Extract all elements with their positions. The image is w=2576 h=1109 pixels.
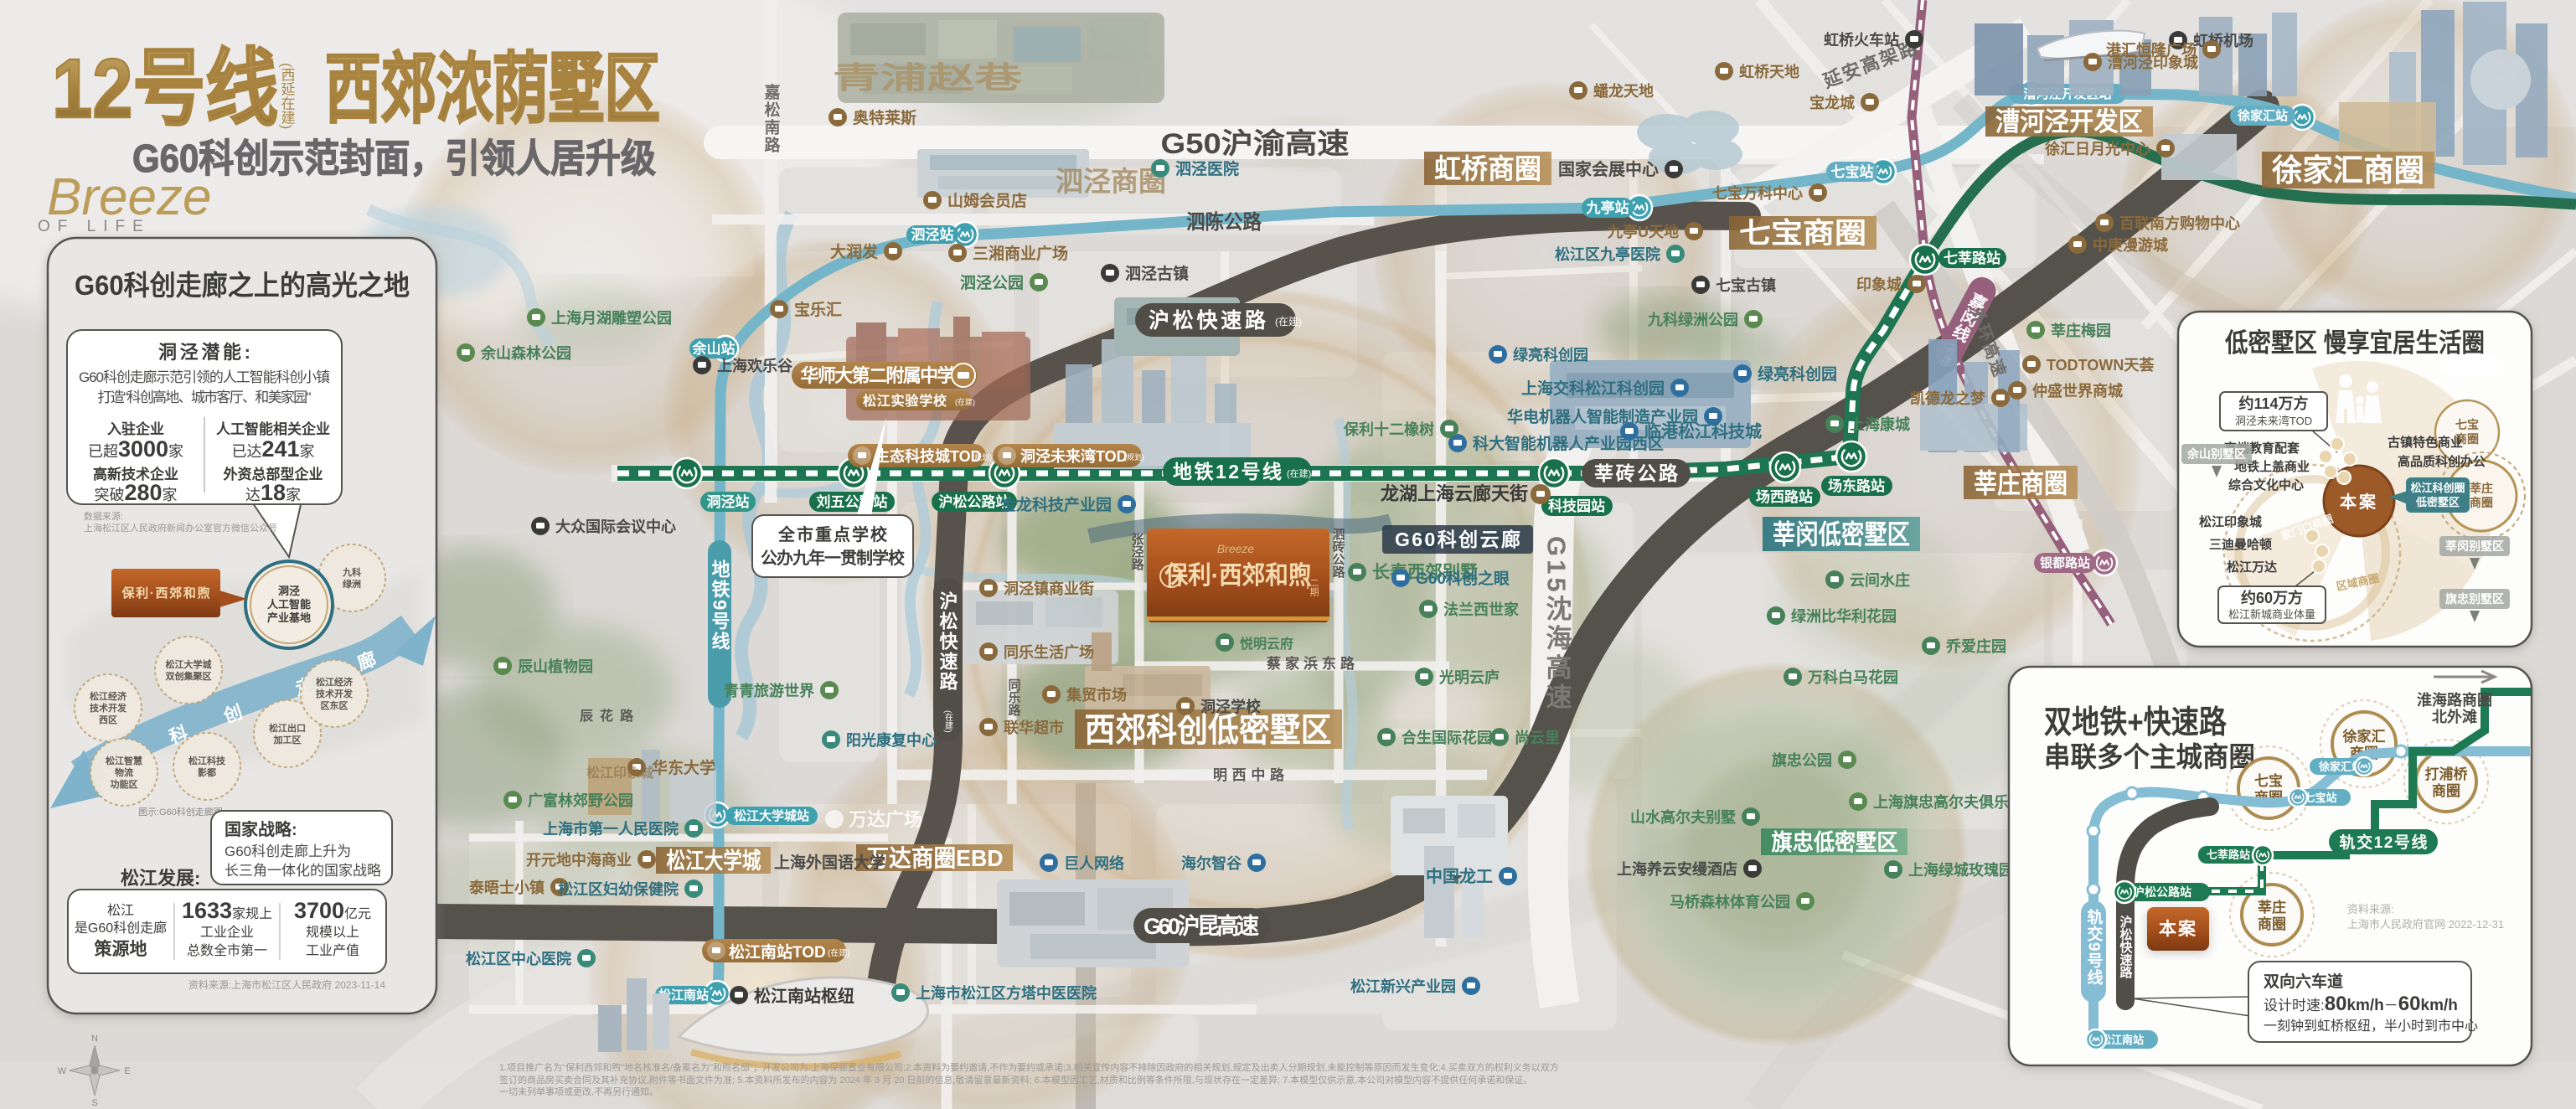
svg-text:悦明云府: 悦明云府 xyxy=(1240,636,1293,652)
svg-text:资料来源:上海市松江区人民政府 2023-11-14: 资料来源:上海市松江区人民政府 2023-11-14 xyxy=(188,978,385,991)
svg-text:(规划): (规划) xyxy=(1124,452,1144,462)
svg-text:商圈: 商圈 xyxy=(2432,782,2460,799)
svg-text:沪松公路站: 沪松公路站 xyxy=(2133,885,2191,899)
svg-text:余山森林公园: 余山森林公园 xyxy=(480,344,571,362)
svg-text:Breeze: Breeze xyxy=(1217,542,1255,555)
svg-text:上海旗忠高尔夫俱乐部: 上海旗忠高尔夫俱乐部 xyxy=(1873,793,2024,811)
svg-text:松江智慧: 松江智慧 xyxy=(106,755,142,766)
svg-text:莘庄: 莘庄 xyxy=(2258,899,2286,916)
svg-text:上海市人民政府官网 2022-12-31: 上海市人民政府官网 2022-12-31 xyxy=(2347,918,2504,931)
svg-text:松江科创圈: 松江科创圈 xyxy=(2410,482,2465,494)
svg-text:尚云里: 尚云里 xyxy=(1515,729,1560,746)
svg-text:场西路站: 场西路站 xyxy=(1756,488,1813,505)
svg-text:双向六车道: 双向六车道 xyxy=(2264,972,2343,991)
svg-text:青青旅游世界: 青青旅游世界 xyxy=(724,682,814,699)
svg-text:山姆会员店: 山姆会员店 xyxy=(947,191,1027,210)
svg-text:绿洲: 绿洲 xyxy=(343,578,361,590)
svg-text:松江经济: 松江经济 xyxy=(90,690,127,702)
svg-text:印象城: 印象城 xyxy=(1856,276,1902,293)
svg-text:影都: 影都 xyxy=(198,766,216,778)
svg-text:徐家汇站: 徐家汇站 xyxy=(2237,108,2288,123)
svg-text:松江新城商业体量: 松江新城商业体量 xyxy=(2228,608,2315,621)
svg-text:广富林郊野公园: 广富林郊野公园 xyxy=(528,792,633,809)
svg-text:G60科创走廊上升为: G60科创走廊上升为 xyxy=(225,843,351,859)
svg-text:生态科技城TOD: 生态科技城TOD xyxy=(875,447,982,465)
svg-text:云间水庄: 云间水庄 xyxy=(1850,571,1910,589)
svg-text:G60科创走廊示范引领的人工智能科创小镇: G60科创走廊示范引领的人工智能科创小镇 xyxy=(79,369,330,385)
svg-text:百联南方购物中心: 百联南方购物中心 xyxy=(2119,214,2240,232)
svg-text:七宝古镇: 七宝古镇 xyxy=(1716,276,1776,294)
svg-text:上海市第一人民医院: 上海市第一人民医院 xyxy=(543,820,679,838)
svg-text:泗泾公园: 泗泾公园 xyxy=(960,274,1024,292)
svg-text:宝乐汇: 宝乐汇 xyxy=(794,300,842,319)
svg-text:莘庄: 莘庄 xyxy=(2470,482,2493,495)
svg-text:泗泾医院: 泗泾医院 xyxy=(1175,159,1239,178)
svg-text:虹桥火车站: 虹桥火车站 xyxy=(1824,31,1899,49)
svg-text:联华超市: 联华超市 xyxy=(1004,719,1064,736)
svg-text:三湘商业广场: 三湘商业广场 xyxy=(973,244,1068,263)
svg-text:TODTOWN天荟: TODTOWN天荟 xyxy=(2047,356,2155,374)
svg-text:九亭站: 九亭站 xyxy=(1586,199,1629,216)
svg-text:徐汇日月光中心: 徐汇日月光中心 xyxy=(2044,140,2150,157)
svg-text:七宝站: 七宝站 xyxy=(2304,792,2336,804)
svg-text:松江印象城: 松江印象城 xyxy=(2199,514,2262,529)
svg-text:松江大学城站: 松江大学城站 xyxy=(734,808,809,823)
svg-text:OF LIFE: OF LIFE xyxy=(38,218,151,235)
svg-text:约114万方: 约114万方 xyxy=(2238,395,2308,412)
svg-text:(在建): (在建) xyxy=(1275,316,1302,328)
svg-text:区东区: 区东区 xyxy=(321,699,348,711)
svg-text:余山别墅区: 余山别墅区 xyxy=(2186,447,2246,461)
svg-text:海尔智谷: 海尔智谷 xyxy=(1181,854,1242,872)
svg-text:同乐生活广场: 同乐生活广场 xyxy=(1004,643,1094,661)
svg-text:轨交12号线: 轨交12号线 xyxy=(2340,833,2428,852)
svg-text:莘闵别墅区: 莘闵别墅区 xyxy=(2445,539,2504,553)
svg-text:松江经济: 松江经济 xyxy=(316,676,354,688)
svg-text:(西延在建): (西延在建) xyxy=(279,63,296,129)
svg-text:(在建): (在建) xyxy=(828,947,850,958)
svg-text:集贸市场: 集贸市场 xyxy=(1066,686,1127,704)
svg-text:打浦桥: 打浦桥 xyxy=(2425,766,2469,782)
svg-text:洞泾未来湾TOD: 洞泾未来湾TOD xyxy=(2235,415,2312,427)
svg-text:12号线: 12号线 xyxy=(52,42,278,136)
svg-text:保利·西郊和煦: 保利·西郊和煦 xyxy=(1165,561,1312,590)
svg-text:松江南站枢纽: 松江南站枢纽 xyxy=(754,986,854,1006)
svg-text:开元地中海商业: 开元地中海商业 xyxy=(526,851,632,869)
svg-text:人工智能: 人工智能 xyxy=(267,598,311,611)
svg-text:沪松公路站: 沪松公路站 xyxy=(939,493,1010,510)
svg-text:巨人网络: 巨人网络 xyxy=(1064,854,1124,872)
svg-text:松江区中心医院: 松江区中心医院 xyxy=(466,950,571,967)
svg-text:泰晤士小镇: 泰晤士小镇 xyxy=(468,879,545,896)
svg-text:本案: 本案 xyxy=(2159,919,2197,939)
svg-text:泗砖公路: 泗砖公路 xyxy=(1331,528,1345,578)
svg-text:万达广场: 万达广场 xyxy=(848,809,922,830)
svg-text:山水高尔夫别墅: 山水高尔夫别墅 xyxy=(1630,808,1736,826)
svg-text:上海交科松江科创园: 上海交科松江科创园 xyxy=(1521,379,1665,398)
svg-text:串联多个主城商圈: 串联多个主城商圈 xyxy=(2044,741,2255,772)
svg-text:莘庄商圈: 莘庄商圈 xyxy=(1974,468,2068,498)
svg-text:是G60科创走廊: 是G60科创走廊 xyxy=(75,921,167,936)
svg-text:蟠龙天地: 蟠龙天地 xyxy=(1593,82,1654,100)
svg-text:宝龙城: 宝龙城 xyxy=(1809,94,1855,111)
svg-text:漕河泾开发区: 漕河泾开发区 xyxy=(1995,107,2143,137)
svg-text:轨交9号线: 轨交9号线 xyxy=(2085,908,2104,986)
svg-text:商圈: 商圈 xyxy=(2258,916,2286,932)
svg-text:泗泾古镇: 泗泾古镇 xyxy=(1125,264,1189,283)
svg-text:长三角一体化的国家战略: 长三角一体化的国家战略 xyxy=(225,863,381,879)
svg-text:中庚漫游城: 中庚漫游城 xyxy=(2093,236,2168,254)
svg-text:洞泾: 洞泾 xyxy=(278,585,300,597)
svg-text:莘闵低密墅区: 莘闵低密墅区 xyxy=(1773,519,1910,549)
svg-text:(在建): (在建) xyxy=(955,397,975,406)
svg-text:上海外国语大学: 上海外国语大学 xyxy=(774,853,885,872)
svg-text:工业企业: 工业企业 xyxy=(200,925,254,940)
svg-text:低密墅区 慢享宜居生活圈: 低密墅区 慢享宜居生活圈 xyxy=(2224,328,2485,358)
svg-text:徐家汇: 徐家汇 xyxy=(2342,728,2386,745)
svg-text:人工智能相关企业: 人工智能相关企业 xyxy=(216,420,330,437)
svg-text:G60科创走廊之上的高光之地: G60科创走廊之上的高光之地 xyxy=(75,270,410,301)
svg-text:仲盛世界商城: 仲盛世界商城 xyxy=(2032,382,2123,400)
svg-text:签订的商品房买卖合同及其补充协议,附件等书面文件为准; 5.: 签订的商品房买卖合同及其补充协议,附件等书面文件为准; 5.本资料所发布的内容为… xyxy=(499,1074,1532,1086)
svg-text:七宝万科中心: 七宝万科中心 xyxy=(1712,184,1803,202)
svg-text:G50沪渝高速: G50沪渝高速 xyxy=(1161,128,1350,160)
svg-text:辰花路: 辰花路 xyxy=(580,708,634,724)
svg-text:金龙科技产业园: 金龙科技产业园 xyxy=(999,495,1112,514)
svg-text:商圈: 商圈 xyxy=(2470,496,2493,509)
svg-text:七莘路站: 七莘路站 xyxy=(2207,849,2250,861)
svg-text:马桥森林体育公园: 马桥森林体育公园 xyxy=(1670,893,1790,910)
svg-text:松江科技: 松江科技 xyxy=(188,755,226,766)
svg-text:W: W xyxy=(58,1066,67,1076)
svg-text:虹桥天地: 虹桥天地 xyxy=(1739,63,1799,80)
svg-text:场东路站: 场东路站 xyxy=(1828,477,1885,494)
svg-text:虹桥商圈: 虹桥商圈 xyxy=(1434,153,1541,184)
svg-text:洞泾潜能:: 洞泾潜能: xyxy=(158,342,250,363)
svg-text:大众国际会议中心: 大众国际会议中心 xyxy=(555,518,676,535)
svg-text:双地铁+快速路: 双地铁+快速路 xyxy=(2044,705,2228,740)
svg-text:青浦赵巷: 青浦赵巷 xyxy=(833,60,1024,95)
svg-text:嘉松南路: 嘉松南路 xyxy=(762,84,782,154)
svg-text:古镇特色商业: 古镇特色商业 xyxy=(2388,435,2463,450)
svg-text:莘砖公路: 莘砖公路 xyxy=(1594,462,1679,484)
svg-text:松江区九亭医院: 松江区九亭医院 xyxy=(1555,245,1660,263)
svg-text:北外滩: 北外滩 xyxy=(2432,708,2477,725)
svg-text:科技园站: 科技园站 xyxy=(1548,498,1605,514)
svg-text:技术开发: 技术开发 xyxy=(90,702,127,714)
svg-text:S: S xyxy=(91,1098,97,1108)
svg-text:万达商圈EBD: 万达商圈EBD xyxy=(867,845,1004,871)
svg-text:同乐路: 同乐路 xyxy=(1007,678,1021,716)
svg-text:临港松江科技城: 临港松江科技城 xyxy=(1644,421,1762,441)
svg-text:高品质科创办公: 高品质科创办公 xyxy=(2398,454,2486,469)
svg-text:龙湖上海云廊天街: 龙湖上海云廊天街 xyxy=(1381,483,1528,504)
svg-text:低密墅区: 低密墅区 xyxy=(2415,496,2460,508)
svg-text:三迪曼哈顿: 三迪曼哈顿 xyxy=(2209,537,2272,552)
svg-text:(在建): (在建) xyxy=(1287,467,1311,479)
svg-text:G60科创之眼: G60科创之眼 xyxy=(1416,569,1510,588)
svg-text:旗忠低密墅区: 旗忠低密墅区 xyxy=(1772,829,1898,855)
svg-text:港汇恒隆广场: 港汇恒隆广场 xyxy=(2106,41,2197,59)
svg-text:泗泾站: 泗泾站 xyxy=(911,226,954,243)
svg-text:七莘路站: 七莘路站 xyxy=(1944,250,2000,266)
svg-text:西郊浓荫墅区: 西郊浓荫墅区 xyxy=(325,47,660,132)
svg-text:约60万方: 约60万方 xyxy=(2241,589,2303,606)
svg-text:地铁9号线: 地铁9号线 xyxy=(710,560,730,652)
svg-text:光明云庐: 光明云庐 xyxy=(1438,668,1500,686)
svg-text:双创集聚区: 双创集聚区 xyxy=(166,670,212,682)
svg-text:旗忠公园: 旗忠公园 xyxy=(1772,751,1832,769)
svg-text:(规划): (规划) xyxy=(972,452,992,462)
svg-text:徐家汇商圈: 徐家汇商圈 xyxy=(2271,153,2424,188)
svg-text:规模以上: 规模以上 xyxy=(306,925,359,940)
svg-text:七宝商圈: 七宝商圈 xyxy=(1739,218,1866,250)
svg-text:中国龙工: 中国龙工 xyxy=(1426,866,1493,886)
svg-text:虹桥机场: 虹桥机场 xyxy=(2193,32,2253,49)
svg-text:松江大学城: 松江大学城 xyxy=(667,848,761,874)
svg-text:G15沈海高速: G15沈海高速 xyxy=(1542,536,1572,713)
svg-text:功能区: 功能区 xyxy=(111,778,138,790)
svg-text:保利·西郊和煦: 保利·西郊和煦 xyxy=(121,585,210,601)
svg-text:上海市松江区方塔中医医院: 上海市松江区方塔中医医院 xyxy=(916,984,1097,1002)
svg-text:法兰西世家: 法兰西世家 xyxy=(1443,601,1520,618)
svg-text:辰山植物园: 辰山植物园 xyxy=(518,658,593,675)
svg-text:国家会展中心: 国家会展中心 xyxy=(1558,159,1659,179)
svg-text:七宝: 七宝 xyxy=(2254,772,2283,789)
svg-text:松江实验学校: 松江实验学校 xyxy=(863,393,947,409)
svg-text:泗陈公路: 泗陈公路 xyxy=(1186,210,1262,234)
svg-text:洞泾站: 洞泾站 xyxy=(707,493,750,510)
svg-text:洞泾镇商业街: 洞泾镇商业街 xyxy=(1004,580,1094,597)
svg-text:(在建): (在建) xyxy=(943,710,953,733)
svg-text:西郊科创低密墅区: 西郊科创低密墅区 xyxy=(1085,712,1332,749)
svg-text:技术开发: 技术开发 xyxy=(316,688,354,699)
svg-text:洞泾学校: 洞泾学校 xyxy=(1200,698,1262,715)
svg-text:绿亮科创园: 绿亮科创园 xyxy=(1758,364,1837,384)
svg-text:泗泾商圈: 泗泾商圈 xyxy=(1056,166,1166,197)
svg-text:洞泾未来湾TOD: 洞泾未来湾TOD xyxy=(1020,447,1128,465)
svg-text:松江大学城: 松江大学城 xyxy=(166,658,212,670)
svg-text:物流: 物流 xyxy=(115,766,133,778)
svg-text:一刻钟到虹桥枢纽，半小时到市中心: 一刻钟到虹桥枢纽，半小时到市中心 xyxy=(2264,1019,2478,1034)
svg-text:旗忠别墅区: 旗忠别墅区 xyxy=(2445,592,2504,606)
svg-text:松江万达: 松江万达 xyxy=(2227,560,2277,575)
svg-text:松江发展:: 松江发展: xyxy=(121,868,200,889)
svg-text:资料来源:: 资料来源: xyxy=(2347,903,2394,916)
svg-text:加工区: 加工区 xyxy=(273,734,302,745)
svg-text:保利十二橡树: 保利十二橡树 xyxy=(1343,420,1434,438)
svg-text:绿洲比华利花园: 绿洲比华利花园 xyxy=(1791,607,1897,625)
svg-text:工业产值: 工业产值 xyxy=(306,943,359,958)
svg-text:沪松快速路: 沪松快速路 xyxy=(937,591,958,692)
svg-text:1.项目推广名为"保利西郊和煦"地名核准名/备案名为"和煦名: 1.项目推广名为"保利西郊和煦"地名核准名/备案名为"和煦名邸"；开发公司为:上… xyxy=(499,1061,1559,1073)
svg-text:九科: 九科 xyxy=(342,566,361,578)
svg-text:松江: 松江 xyxy=(107,903,134,918)
svg-text:数据来源:: 数据来源: xyxy=(84,510,123,522)
svg-text:国家战略:: 国家战略: xyxy=(225,819,297,839)
svg-text:松江区妇幼保健院: 松江区妇幼保健院 xyxy=(558,880,679,898)
svg-text:华东大学: 华东大学 xyxy=(652,758,715,777)
svg-text:华师大第二附属中学: 华师大第二附属中学 xyxy=(801,365,956,386)
svg-text:公办九年一贯制学校: 公办九年一贯制学校 xyxy=(761,548,906,568)
svg-text:上海养云安缦酒店: 上海养云安缦酒店 xyxy=(1617,860,1737,878)
svg-text:松江南站TOD: 松江南站TOD xyxy=(729,942,826,962)
svg-text:产业基地: 产业基地 xyxy=(267,611,311,624)
svg-text:淮海路商圈: 淮海路商圈 xyxy=(2417,691,2492,709)
svg-text:一切未列举事项或更改,不再另行通知。: 一切未列举事项或更改,不再另行通知。 xyxy=(499,1086,658,1097)
svg-text:奥特莱斯: 奥特莱斯 xyxy=(853,108,916,127)
svg-text:沪松快速路: 沪松快速路 xyxy=(1149,309,1267,333)
svg-text:松江新兴产业园: 松江新兴产业园 xyxy=(1350,977,1456,995)
svg-text:蔡家浜东路: 蔡家浜东路 xyxy=(1266,655,1355,672)
svg-text:入驻企业: 入驻企业 xyxy=(107,420,164,437)
svg-text:上海绿城玫瑰园: 上海绿城玫瑰园 xyxy=(1908,861,2014,879)
svg-text:阳光康复中心: 阳光康复中心 xyxy=(846,731,937,749)
svg-text:沪松快速路: 沪松快速路 xyxy=(2119,915,2133,978)
svg-text:二期: 二期 xyxy=(1309,578,1319,597)
svg-text:图示:G60科创走廊图: 图示:G60科创走廊图 xyxy=(138,806,223,818)
svg-text:综合文化中心: 综合文化中心 xyxy=(2228,477,2304,493)
svg-text:银都路站: 银都路站 xyxy=(2040,555,2090,570)
svg-text:上海欢乐谷: 上海欢乐谷 xyxy=(717,357,793,374)
svg-text:凯德龙之梦: 凯德龙之梦 xyxy=(1910,389,1986,407)
svg-text:张泾路: 张泾路 xyxy=(1130,533,1144,570)
svg-text:上海康城: 上海康城 xyxy=(1850,415,1910,433)
svg-text:G60沪昆高速: G60沪昆高速 xyxy=(1143,913,1259,939)
svg-text:上海松江区人民政府新闻办公室官方微信公众号: 上海松江区人民政府新闻办公室官方微信公众号 xyxy=(84,522,277,534)
svg-text:刘五公路站: 刘五公路站 xyxy=(817,493,888,510)
svg-text:松江印象城: 松江印象城 xyxy=(586,765,653,781)
svg-text:大润发: 大润发 xyxy=(830,242,879,261)
svg-text:松江出口: 松江出口 xyxy=(269,722,306,734)
svg-text:九科绿洲公园: 九科绿洲公园 xyxy=(1647,311,1738,328)
svg-text:西区: 西区 xyxy=(99,714,117,725)
svg-text:七宝站: 七宝站 xyxy=(1831,163,1874,180)
svg-text:余山站: 余山站 xyxy=(692,340,736,357)
svg-text:莘庄梅园: 莘庄梅园 xyxy=(2051,322,2111,339)
svg-text:九亭U天地: 九亭U天地 xyxy=(1607,223,1679,240)
svg-text:上海月湖雕塑公园: 上海月湖雕塑公园 xyxy=(551,309,672,327)
svg-text:绿亮科创园: 绿亮科创园 xyxy=(1513,346,1588,364)
svg-text:乔爱庄园: 乔爱庄园 xyxy=(1945,637,2006,655)
svg-text:本案: 本案 xyxy=(2340,492,2378,512)
svg-text:七宝: 七宝 xyxy=(2455,418,2479,431)
svg-text:E: E xyxy=(124,1066,130,1076)
svg-text:策源地: 策源地 xyxy=(95,939,147,959)
svg-text:打造"科创高地、城市客厅、和美家园": 打造"科创高地、城市客厅、和美家园" xyxy=(98,389,312,405)
svg-text:万科白马花园: 万科白马花园 xyxy=(1807,668,1898,686)
svg-text:合生国际花园: 合生国际花园 xyxy=(1402,729,1492,746)
svg-text:总数全市第一: 总数全市第一 xyxy=(187,943,267,958)
svg-text:N: N xyxy=(91,1034,98,1044)
